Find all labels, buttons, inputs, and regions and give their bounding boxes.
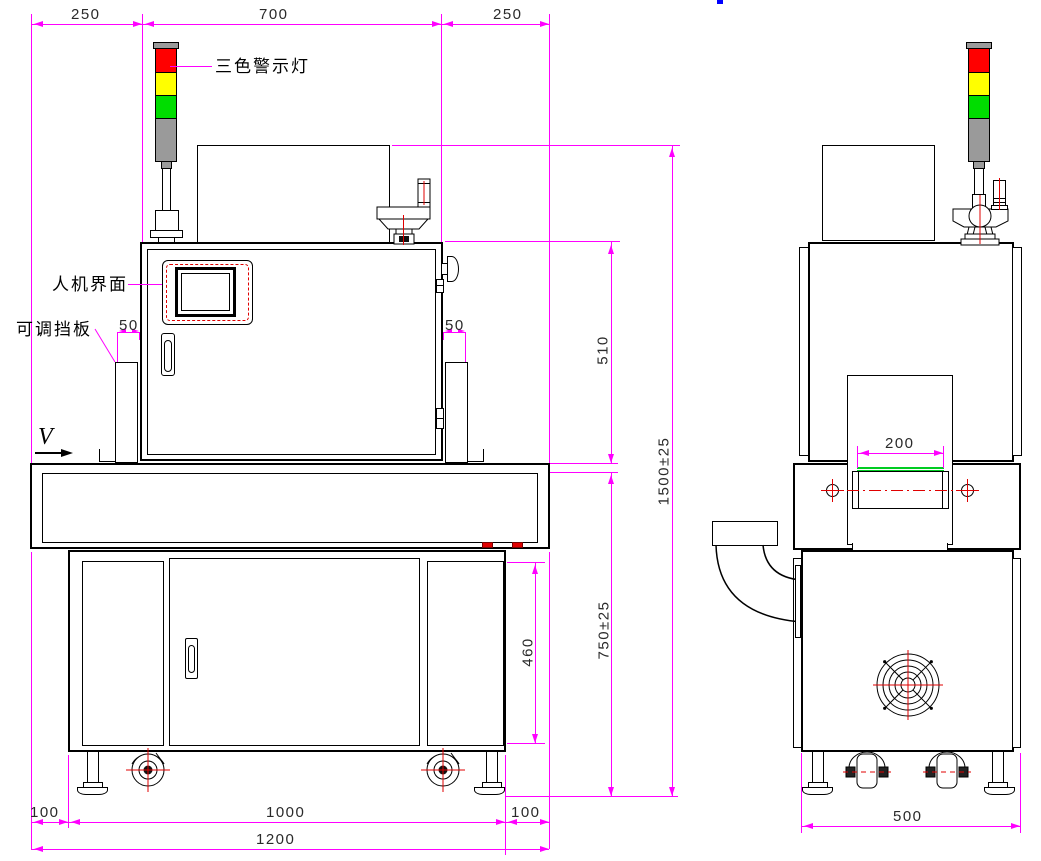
baffle-bracket-left xyxy=(99,449,116,462)
view-marker-label: V xyxy=(38,425,53,449)
leveling-foot-base xyxy=(984,787,1015,795)
leveling-foot-base xyxy=(802,787,833,795)
dim-line-200 xyxy=(857,453,943,454)
dim-top-center: 700 xyxy=(259,7,289,22)
pole-nut xyxy=(155,210,179,231)
dim-line-top xyxy=(31,24,549,25)
dim-arrow xyxy=(669,787,675,799)
hinge xyxy=(436,285,444,293)
hinge xyxy=(436,418,444,429)
dim-arrow xyxy=(608,787,614,799)
dim-top-right: 250 xyxy=(493,7,523,22)
caster-front-right xyxy=(421,748,465,796)
ground-extension-line xyxy=(505,796,678,797)
lamp-yellow xyxy=(968,72,990,96)
extension-line xyxy=(505,755,506,855)
leveling-foot-stem xyxy=(992,751,1004,784)
dim-door-height: 460 xyxy=(521,637,536,667)
dim-arrow xyxy=(540,819,552,825)
extension-line xyxy=(549,14,550,463)
marker-crosshair-h xyxy=(956,490,979,491)
tunnel-opening xyxy=(847,375,953,545)
dim-line-500 xyxy=(801,826,1020,827)
dim-base-width: 500 xyxy=(893,809,923,824)
extension-line xyxy=(465,332,466,362)
machine-top-box xyxy=(197,145,390,243)
extension-line xyxy=(441,14,442,242)
extension-line xyxy=(507,743,545,744)
baffle-bracket-right xyxy=(467,449,484,462)
conveyor-table-inner xyxy=(42,473,538,543)
dim-arrow xyxy=(669,145,675,157)
head-side-strip-right xyxy=(1012,247,1022,456)
door-handle-pill xyxy=(188,645,195,673)
lamp-green xyxy=(968,95,990,119)
hmi-label: 人机界面 xyxy=(52,276,128,293)
drawing-canvas: 250 700 250 510 750±25 1500±25 460 xyxy=(0,0,1041,861)
dim-head-height: 510 xyxy=(596,335,611,365)
extension-line xyxy=(117,332,118,362)
dim-arrow xyxy=(31,846,43,852)
dim-arrow xyxy=(801,823,813,829)
handwheel-front xyxy=(375,175,433,245)
dim-baffle-gap-right: 50 xyxy=(445,318,465,333)
caster-side-right xyxy=(923,748,971,794)
view-arrow-head xyxy=(61,449,77,457)
dim-arrow xyxy=(857,450,869,456)
dim-arrow xyxy=(532,734,538,746)
hmi-screen-inner xyxy=(181,273,230,311)
dim-line-bottom xyxy=(31,822,549,823)
dim-arrow xyxy=(31,21,43,27)
machine-top-box-side xyxy=(822,145,935,241)
extension-line xyxy=(392,145,680,146)
dim-arrow xyxy=(532,562,538,574)
warning-light-leader xyxy=(170,66,212,67)
lamp-red xyxy=(155,48,177,73)
leveling-foot-stem xyxy=(812,751,824,784)
cabinet-door xyxy=(169,558,420,746)
baffle-leader xyxy=(93,326,117,366)
dim-baffle-gap-left: 50 xyxy=(119,318,139,333)
lamp-body xyxy=(155,118,177,162)
cabinet-side-strip-right xyxy=(1012,558,1021,748)
dim-table-height: 750±25 xyxy=(597,601,612,660)
extension-line xyxy=(139,332,140,340)
duct-bracket xyxy=(795,565,801,638)
extension-line xyxy=(507,562,545,563)
dim-bottom-center: 1000 xyxy=(266,805,305,820)
dim-arrow xyxy=(608,242,614,254)
belt-center-line xyxy=(847,490,953,491)
dim-total-height: 1500±25 xyxy=(657,437,672,506)
extension-line xyxy=(549,552,550,849)
dim-arrow xyxy=(934,450,946,456)
door-slot-pill xyxy=(164,340,172,372)
dim-bottom-right: 100 xyxy=(511,805,541,820)
lamp-yellow xyxy=(155,72,177,96)
duct-elbow xyxy=(707,540,807,630)
dim-arrow xyxy=(540,21,552,27)
dim-arrow xyxy=(68,819,80,825)
dim-arrow xyxy=(540,846,552,852)
extension-line xyxy=(1020,753,1021,833)
leveling-foot-stem xyxy=(486,751,498,784)
lamp-body xyxy=(968,118,990,162)
dim-arrow xyxy=(441,21,453,27)
dim-belt-width: 200 xyxy=(885,436,915,451)
pole-base xyxy=(158,237,175,243)
adjustable-baffle-right xyxy=(445,362,468,463)
dim-top-left: 250 xyxy=(71,7,101,22)
adjustable-baffle-left xyxy=(115,362,138,463)
extension-line xyxy=(445,241,620,242)
dim-bottom-left: 100 xyxy=(30,805,60,820)
baffle-label: 可调挡板 xyxy=(16,321,92,338)
leveling-foot-base xyxy=(77,787,108,795)
extension-line xyxy=(801,753,802,833)
dim-line-total-width xyxy=(31,849,549,850)
warning-light-label: 三色警示灯 xyxy=(215,58,310,75)
marker-crosshair-h xyxy=(821,490,844,491)
dim-arrow xyxy=(142,21,154,27)
red-clamp xyxy=(482,542,493,548)
caster-side-left xyxy=(843,748,891,794)
side-knob-cap xyxy=(447,256,459,282)
extension-line xyxy=(31,14,32,463)
cursor-artifact xyxy=(717,0,723,4)
dim-bottom-total: 1200 xyxy=(256,832,295,847)
lamp-green xyxy=(155,95,177,119)
dim-arrow xyxy=(1011,823,1023,829)
head-side-strip-left xyxy=(799,247,809,456)
leveling-foot-stem xyxy=(87,751,99,784)
cabinet-right-panel xyxy=(427,561,504,746)
red-clamp xyxy=(512,542,523,548)
extension-line xyxy=(142,14,143,242)
dim-arrow xyxy=(608,454,614,466)
caster-front-left xyxy=(126,748,170,796)
extension-line xyxy=(443,332,444,340)
knob-center-line xyxy=(999,178,1000,210)
leveling-foot-base xyxy=(474,787,505,795)
dim-arrow xyxy=(608,472,614,484)
light-pole xyxy=(162,168,171,211)
hmi-leader-line xyxy=(128,284,162,285)
cabinet-left-panel xyxy=(82,561,164,746)
lamp-red xyxy=(968,48,990,73)
extension-line xyxy=(68,755,69,828)
fan-grille xyxy=(873,650,943,720)
